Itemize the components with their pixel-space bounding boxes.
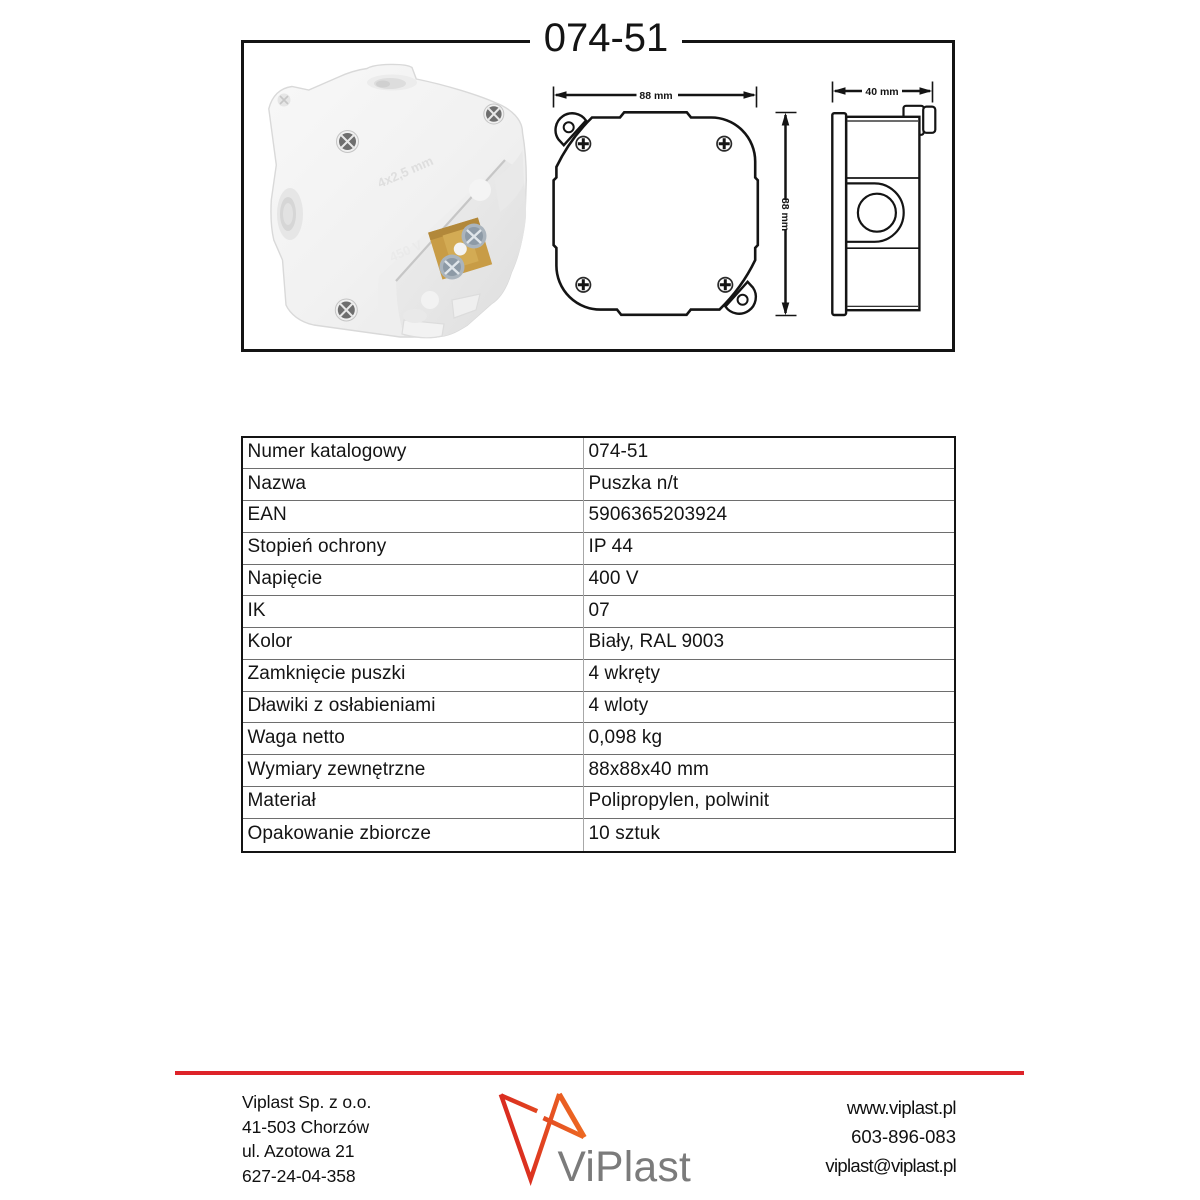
svg-text:40 mm: 40 mm — [865, 86, 898, 98]
svg-text:88 mm: 88 mm — [639, 90, 672, 102]
svg-text:88 mm: 88 mm — [779, 198, 791, 231]
